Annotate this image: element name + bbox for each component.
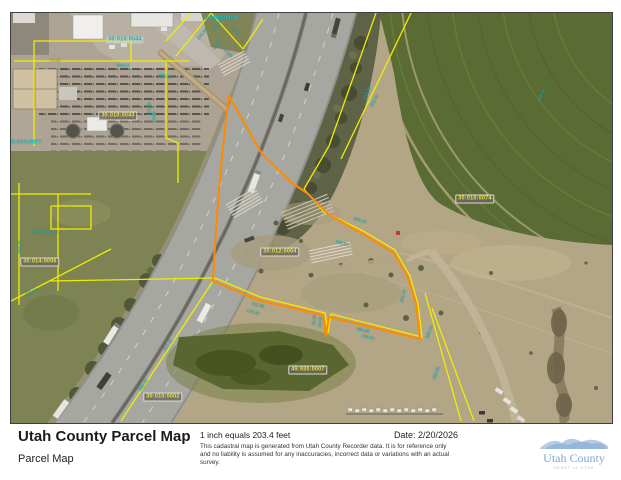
map-subtitle: Parcel Map — [18, 453, 74, 465]
logo-tagline: HEART of UTAH — [554, 466, 595, 470]
building — [73, 15, 103, 39]
page-title: Utah County Parcel Map — [18, 428, 191, 445]
object-marker — [396, 231, 400, 235]
map-canvas[interactable]: 30:010:004430:010:002830:010:004330:014:… — [10, 12, 613, 424]
scale-text: 1 inch equals 203.4 feet — [200, 430, 290, 440]
building — [59, 87, 77, 100]
logo-name: Utah County — [543, 451, 605, 465]
date-text: Date: 2/20/2026 — [394, 430, 458, 440]
parcel-map-report-page: 30:010:004430:010:002830:010:004330:014:… — [0, 0, 621, 480]
footer: Utah County Parcel Map Parcel Map 1 inch… — [0, 424, 621, 480]
disclaimer-text: This cadastral map is generated from Uta… — [200, 443, 458, 468]
storage-tank — [110, 124, 124, 138]
aerial-imagery — [11, 13, 612, 423]
building — [131, 13, 173, 27]
scale-block: 1 inch equals 203.4 feet Date: 2/20/2026… — [200, 430, 458, 468]
pond-patch — [166, 323, 356, 403]
building — [87, 117, 107, 131]
utah-county-logo: Utah County HEART of UTAH — [536, 432, 612, 476]
storage-tank — [66, 124, 80, 138]
